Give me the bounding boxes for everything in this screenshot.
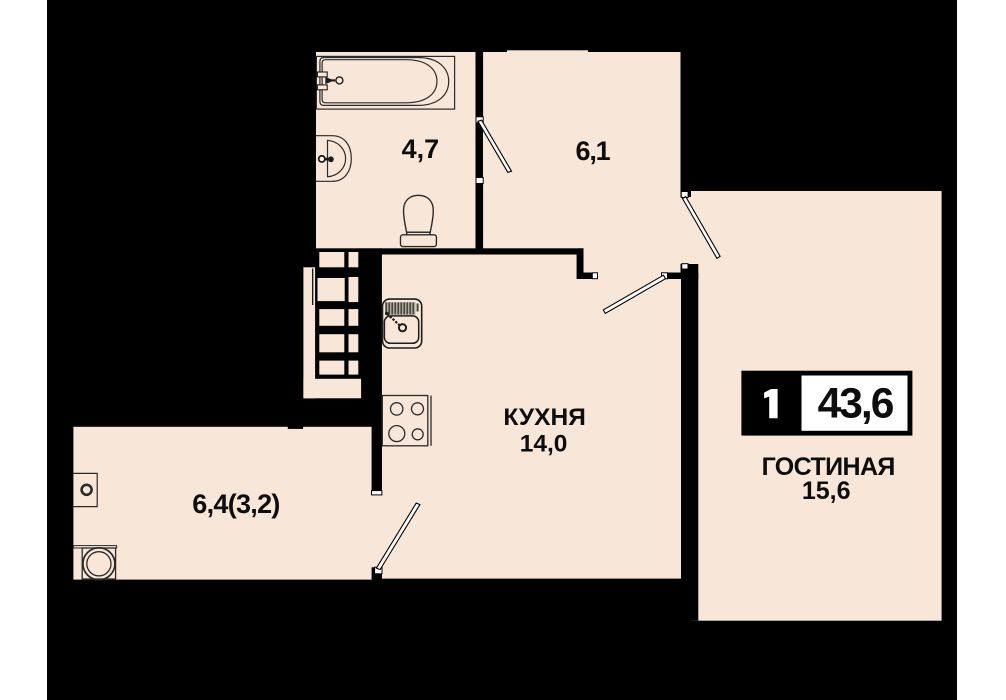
svg-text:КУХНЯ: КУХНЯ	[503, 404, 585, 431]
svg-text:6,4(3,2): 6,4(3,2)	[192, 489, 279, 519]
svg-text:14,0: 14,0	[520, 431, 568, 458]
svg-text:6,1: 6,1	[576, 136, 611, 166]
svg-text:43,6: 43,6	[818, 381, 894, 428]
svg-text:15,6: 15,6	[802, 477, 851, 505]
svg-text:4,7: 4,7	[402, 134, 440, 164]
